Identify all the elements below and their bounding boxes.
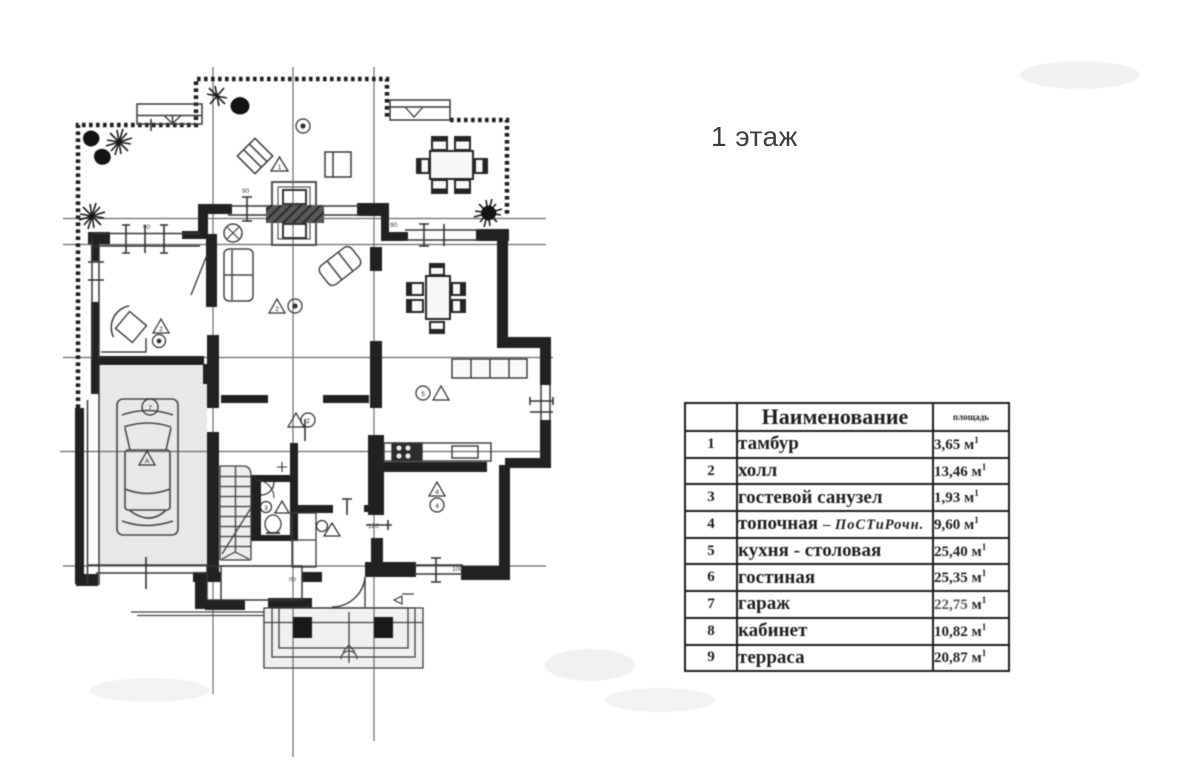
svg-text:2: 2 [159, 326, 163, 333]
svg-text:4: 4 [435, 489, 439, 496]
svg-text:2: 2 [306, 418, 310, 425]
svg-text:1: 1 [278, 164, 282, 171]
svg-text:7: 7 [148, 405, 152, 412]
svg-text:90: 90 [390, 222, 398, 229]
svg-text:2: 2 [275, 306, 279, 313]
svg-text:90: 90 [143, 224, 151, 231]
svg-text:A: A [145, 458, 150, 465]
svg-text:3: 3 [264, 505, 268, 512]
svg-text:100: 100 [452, 566, 463, 573]
svg-text:5: 5 [421, 391, 425, 398]
svg-text:по: по [289, 576, 297, 583]
svg-text:4: 4 [435, 503, 439, 510]
svg-text:90: 90 [242, 188, 250, 195]
svg-text:120: 120 [368, 523, 379, 530]
